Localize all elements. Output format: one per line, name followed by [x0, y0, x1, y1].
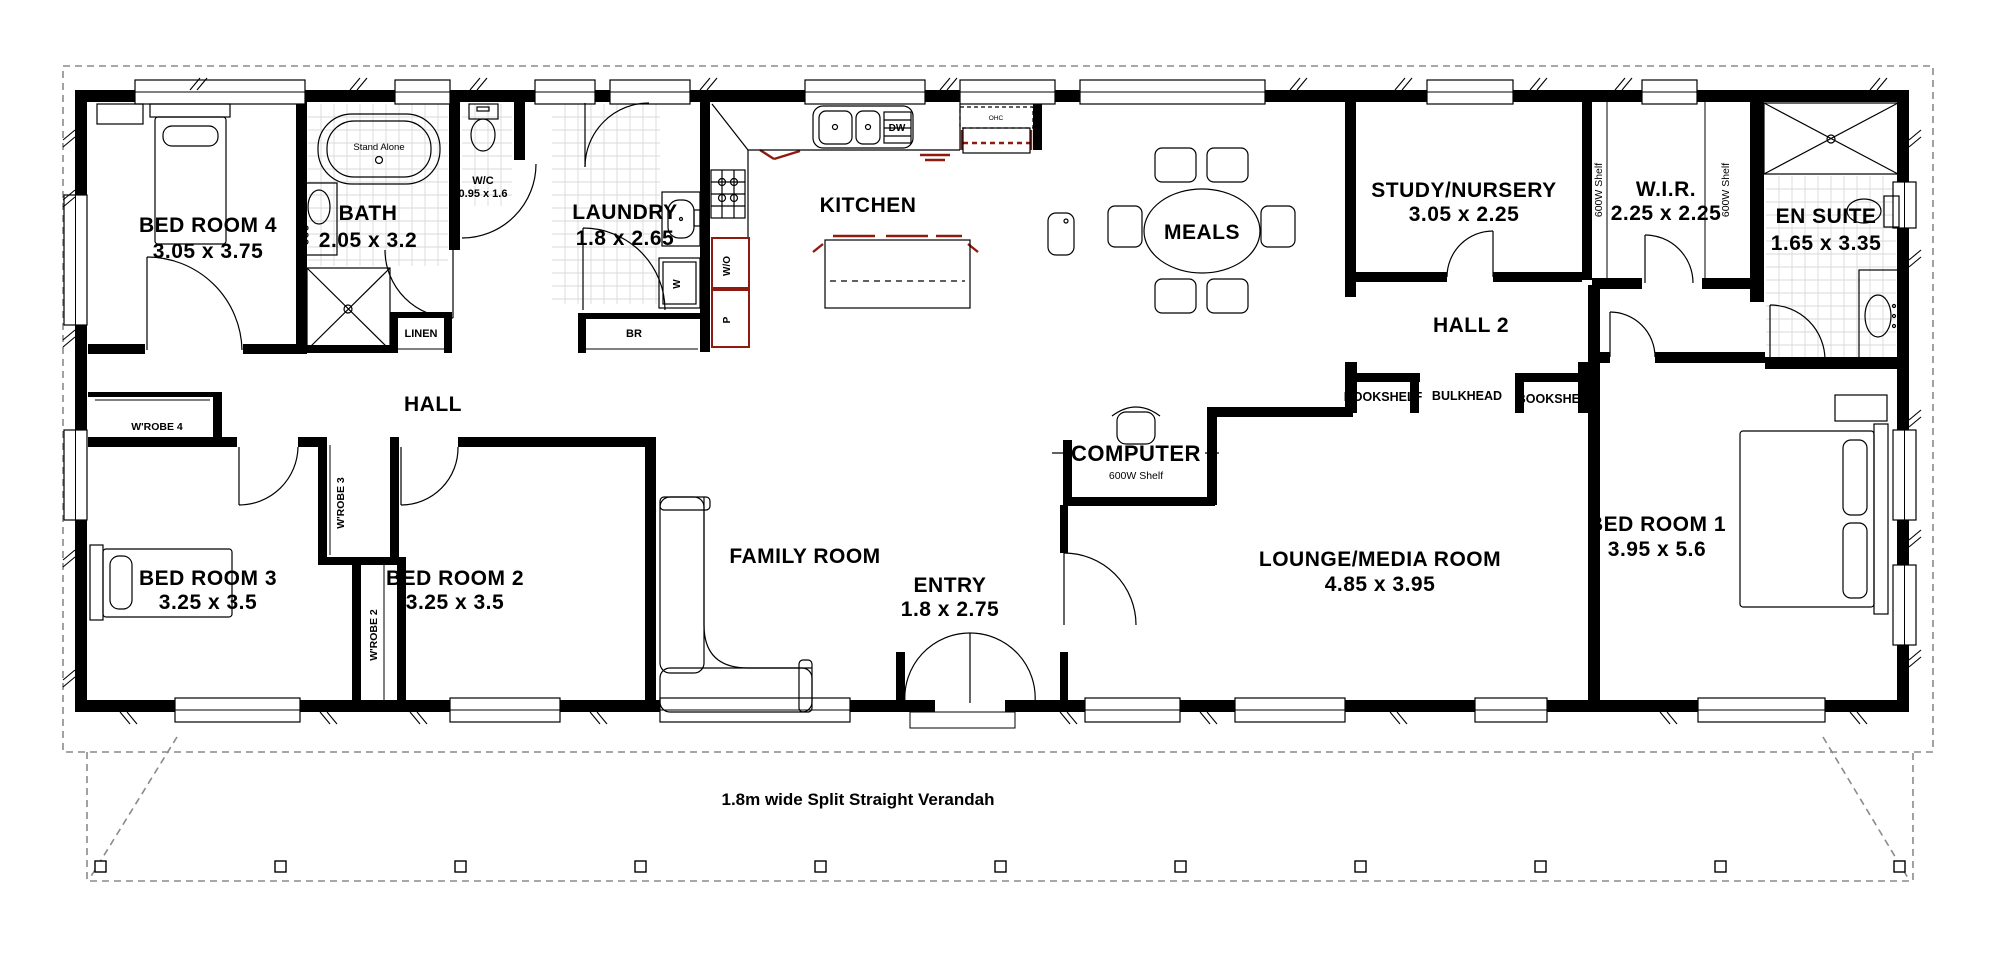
wir-shelf-right-label: 600W Shelf — [1720, 163, 1732, 217]
room-dims-laundry: 1.8 x 2.65 — [576, 227, 674, 250]
room-dims-wir: 2.25 x 2.25 — [1611, 202, 1722, 225]
wall-segment — [1350, 272, 1447, 282]
wrobe2-label: W'ROBE 2 — [368, 609, 380, 661]
wall-segment — [1353, 373, 1420, 382]
ohc-label: OHC — [989, 115, 1004, 122]
pantry-label: P — [722, 316, 733, 323]
wall-segment — [896, 652, 905, 712]
linen-label: LINEN — [405, 328, 438, 340]
verandah-post — [635, 861, 646, 872]
room-label-study: STUDY/NURSERY — [1371, 179, 1556, 202]
room-dims-bed4: 3.05 x 3.75 — [153, 240, 264, 263]
room-label-wc: W/C — [472, 175, 493, 187]
room-label-lounge: LOUNGE/MEDIA ROOM — [1259, 548, 1501, 571]
room-dims-bed3: 3.25 x 3.5 — [159, 591, 257, 614]
verandah-post — [995, 861, 1006, 872]
bookshelf-left-label: BOOKSHELF — [1344, 390, 1423, 404]
wall-segment — [352, 557, 361, 712]
room-label-bed4: BED ROOM 4 — [139, 214, 277, 237]
wall-oven-label: W/O — [722, 256, 733, 276]
wall-segment — [1582, 102, 1592, 280]
wall-segment — [1588, 285, 1600, 712]
wir-shelf-left-label: 600W Shelf — [1593, 163, 1605, 217]
verandah-post — [455, 861, 466, 872]
room-dims-bed1: 3.95 x 5.6 — [1608, 538, 1706, 561]
entry-step — [910, 712, 1015, 728]
bath-tub-label: Stand Alone — [353, 142, 404, 153]
room-label-laundry: LAUNDRY — [572, 201, 677, 224]
wrobe3-label: W'ROBE 3 — [335, 477, 347, 529]
wall-segment — [458, 437, 645, 447]
room-label-hall2: HALL 2 — [1433, 314, 1509, 337]
verandah-post — [1535, 861, 1546, 872]
wall-segment — [88, 392, 215, 397]
room-label-family: FAMILY ROOM — [729, 545, 880, 568]
wall-segment — [213, 392, 222, 442]
room-label-bed3: BED ROOM 3 — [139, 567, 277, 590]
room-label-bed2: BED ROOM 2 — [386, 567, 524, 590]
wall-segment — [390, 437, 399, 565]
verandah-post — [1175, 861, 1186, 872]
wall-segment — [1060, 652, 1068, 712]
wall-segment — [75, 90, 87, 712]
room-dims-bed2: 3.25 x 3.5 — [406, 591, 504, 614]
wall-segment — [700, 102, 710, 352]
wall-segment — [1345, 362, 1357, 413]
wall-segment — [318, 437, 327, 565]
wall-segment — [514, 102, 525, 160]
bookshelf-right-label: BOOKSHELF — [1517, 392, 1596, 406]
verandah-post — [815, 861, 826, 872]
wall-segment — [1033, 102, 1042, 150]
red-cabinets — [712, 238, 749, 347]
wall-segment — [298, 437, 318, 447]
room-label-entry: ENTRY — [914, 574, 987, 597]
wall-segment — [578, 313, 700, 319]
room-dims-bath: 2.05 x 3.2 — [319, 229, 417, 252]
verandah-label: 1.8m wide Split Straight Verandah — [721, 790, 994, 809]
verandah-post — [1894, 861, 1905, 872]
floor-plan-page: BED ROOM 4 3.05 x 3.75 BATH 2.05 x 3.2 S… — [0, 0, 2000, 969]
wall-segment — [1207, 407, 1353, 417]
dishwasher-label: DW — [889, 123, 906, 134]
wrobe4-label: W'ROBE 4 — [131, 421, 183, 433]
br-label: BR — [626, 328, 642, 340]
verandah-post — [275, 861, 286, 872]
wall-segment — [88, 344, 145, 354]
room-dims-entry: 1.8 x 2.75 — [901, 598, 999, 621]
wall-segment — [645, 437, 656, 712]
wall-segment — [1063, 497, 1215, 506]
room-label-hall: HALL — [404, 393, 462, 416]
wall-segment — [1493, 272, 1582, 282]
floor-plan: BED ROOM 4 3.05 x 3.75 BATH 2.05 x 3.2 S… — [0, 0, 2000, 969]
wall-segment — [1345, 102, 1356, 297]
washer-label: W — [672, 279, 683, 289]
computer-shelf-label: 600W Shelf — [1109, 470, 1163, 482]
wall-segment — [390, 312, 398, 353]
room-label-ensuite: EN SUITE — [1776, 205, 1877, 228]
wall-segment — [1207, 407, 1217, 505]
room-dims-ensuite: 1.65 x 3.35 — [1771, 232, 1882, 255]
room-label-bath: BATH — [339, 202, 398, 225]
room-label-meals: MEALS — [1164, 221, 1240, 244]
room-dims-wc: 0.95 x 1.6 — [459, 188, 508, 200]
bulkhead-label: BULKHEAD — [1432, 389, 1502, 403]
verandah-post — [1715, 861, 1726, 872]
room-label-computer: COMPUTER — [1071, 441, 1201, 466]
wall-segment — [1655, 352, 1765, 363]
verandah-post — [95, 861, 106, 872]
room-label-kitchen: KITCHEN — [820, 194, 917, 217]
room-dims-study: 3.05 x 2.25 — [1409, 203, 1520, 226]
wall-segment — [1702, 278, 1758, 289]
wall-segment — [1060, 505, 1068, 553]
wall-segment — [449, 102, 460, 250]
room-label-bed1: BED ROOM 1 — [1588, 513, 1726, 536]
wall-segment — [1750, 102, 1764, 302]
room-label-wir: W.I.R. — [1636, 178, 1696, 201]
wall-segment — [318, 557, 406, 565]
verandah-post — [1355, 861, 1366, 872]
room-dims-lounge: 4.85 x 3.95 — [1325, 573, 1436, 596]
